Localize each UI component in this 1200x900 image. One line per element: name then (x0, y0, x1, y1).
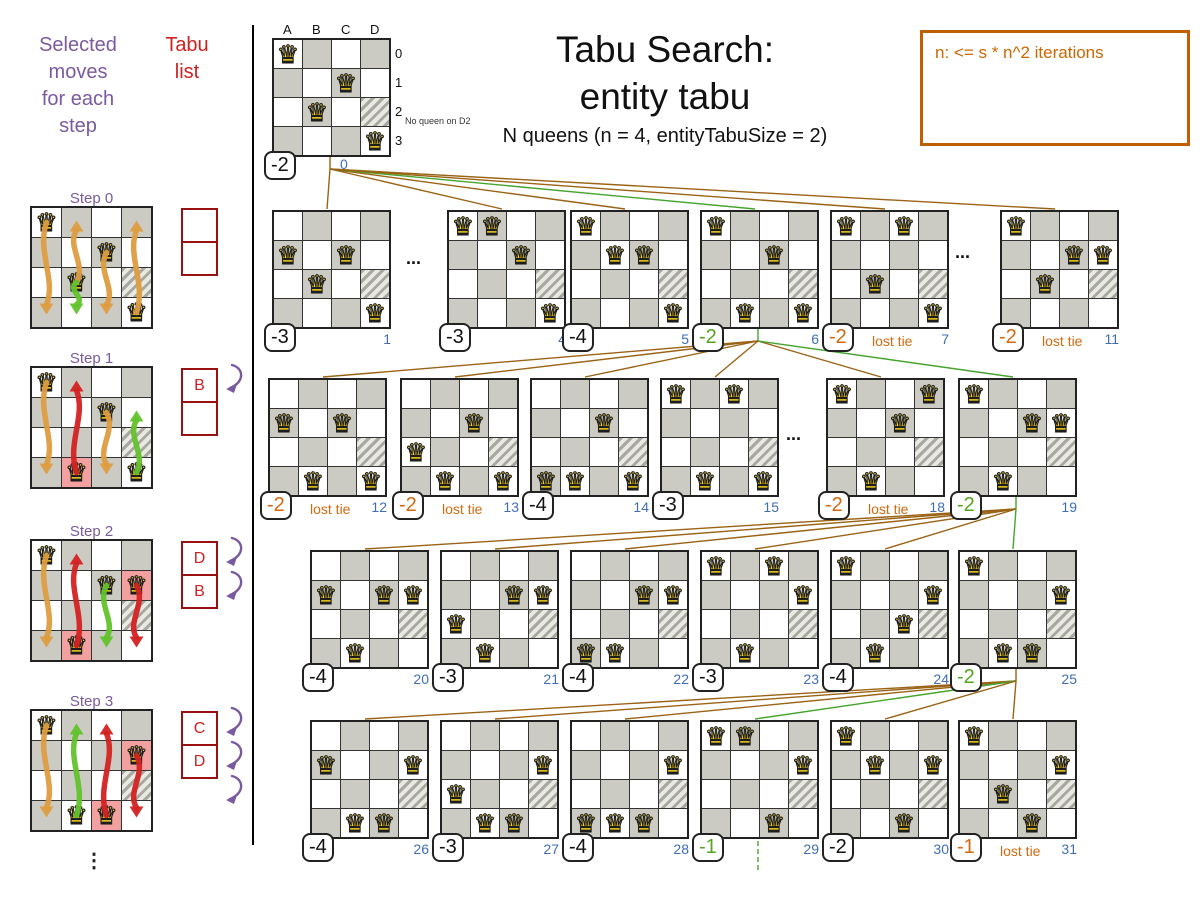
board-cell-B3: ♛ (471, 809, 499, 837)
board-cell-B3 (303, 299, 331, 327)
board-cell-B2 (731, 780, 759, 808)
board-cell-A0: ♛ (832, 722, 860, 750)
board-cell-C3 (720, 467, 748, 495)
board-cell-B0 (601, 212, 629, 240)
board-cell-A1 (572, 751, 600, 779)
board-cell-A1 (449, 241, 477, 269)
board-cell-D3: ♛ (361, 299, 389, 327)
board-14: ♛♛♛♛ (530, 378, 649, 497)
board-cell-C2 (332, 270, 360, 298)
board-cell-A2 (312, 780, 340, 808)
board-cell-A2 (832, 610, 860, 638)
board-cell-A0: ♛ (832, 212, 860, 240)
board-cell-A1: ♛ (312, 581, 340, 609)
queen-icon: ♛ (723, 382, 745, 407)
board-cell-A1 (828, 409, 856, 437)
board-cell-A1: ♛ (270, 409, 298, 437)
board-cell-C1: ♛ (590, 409, 618, 437)
board-cell-B0 (341, 722, 369, 750)
board-cell-C1: ♛ (460, 409, 488, 437)
queen-icon: ♛ (315, 583, 337, 608)
board-cell-A1 (1002, 241, 1030, 269)
board-cell-C3: ♛ (1018, 639, 1046, 667)
board-index-13: 13 (495, 499, 519, 515)
board-cell-C1: ♛ (370, 581, 398, 609)
board-cell-C3 (890, 639, 918, 667)
board-cell-D0 (361, 212, 389, 240)
board-cell-A1 (274, 69, 302, 97)
board-cell-B2 (601, 270, 629, 298)
score-badge-0: -2 (264, 151, 296, 180)
queen-icon: ♛ (705, 214, 727, 239)
board-cell-C1: ♛ (332, 241, 360, 269)
board-cell-A0: ♛ (832, 552, 860, 580)
queen-icon: ♛ (474, 641, 496, 666)
board-cell-D1: ♛ (919, 751, 947, 779)
board-cell-C3 (370, 639, 398, 667)
board-cell-D3: ♛ (619, 467, 647, 495)
tabu-recency-arrow-icon (218, 705, 248, 737)
score-badge-13: -2 (392, 491, 424, 520)
tabu-cell-D: D (183, 744, 216, 777)
tabu-box-step-3: CD (181, 711, 218, 779)
board-cell-D0 (789, 552, 817, 580)
board-cell-D0 (1047, 722, 1075, 750)
board-cell-B1 (601, 751, 629, 779)
board-cell-C2 (890, 270, 918, 298)
board-1: ♛♛♛♛ (272, 210, 391, 329)
board-cell-C2 (760, 610, 788, 638)
queen-icon: ♛ (864, 641, 886, 666)
board-cell-C3 (1060, 299, 1088, 327)
queen-icon: ♛ (893, 612, 915, 637)
board-cell-D2 (529, 780, 557, 808)
board-cell-A0: ♛ (662, 380, 690, 408)
board-index-22: 22 (665, 671, 689, 687)
queen-icon: ♛ (373, 811, 395, 836)
board-cell-D2 (789, 270, 817, 298)
board-index-12: 12 (363, 499, 387, 515)
board-12: ♛♛♛♛ (268, 378, 387, 497)
board-cell-D0 (659, 722, 687, 750)
queen-icon: ♛ (922, 301, 944, 326)
board-cell-C0: ♛ (760, 552, 788, 580)
board-cell-B3 (478, 299, 506, 327)
board-cell-A2 (960, 610, 988, 638)
top-board-col-label-B: B (312, 22, 321, 37)
board-cell-A2: ♛ (442, 780, 470, 808)
board-cell-D1 (357, 409, 385, 437)
queen-icon: ♛ (1021, 411, 1043, 436)
board-cell-C3: ♛ (1018, 809, 1046, 837)
board-cell-D2 (619, 438, 647, 466)
top-board-row-label-3: 3 (395, 133, 402, 148)
board-index-23: 23 (795, 671, 819, 687)
top-board-row-label-1: 1 (395, 75, 402, 90)
tabu-recency-arrow-icon (218, 739, 248, 771)
board-cell-D2 (659, 780, 687, 808)
board-cell-D3 (919, 809, 947, 837)
board-cell-D3: ♛ (659, 299, 687, 327)
board-cell-B2 (989, 438, 1017, 466)
board-cell-C3: ♛ (370, 809, 398, 837)
queen-icon: ♛ (344, 641, 366, 666)
step-3-move-arrows (30, 709, 153, 832)
board-cell-B0 (299, 380, 327, 408)
board-cell-D2 (659, 610, 687, 638)
board-cell-C1 (760, 751, 788, 779)
queen-icon: ♛ (633, 583, 655, 608)
board-cell-D2 (399, 610, 427, 638)
board-cell-B0 (731, 552, 759, 580)
row2-ellipsis: ... (786, 424, 801, 445)
board-index-0: 0 (340, 156, 348, 172)
board-cell-B3 (861, 809, 889, 837)
board-cell-C0 (1060, 212, 1088, 240)
score-badge-6: -2 (692, 323, 724, 352)
queen-icon: ♛ (604, 641, 626, 666)
queen-icon: ♛ (763, 811, 785, 836)
board-cell-C0 (890, 722, 918, 750)
score-badge-25: -2 (950, 663, 982, 692)
board-cell-C0 (332, 212, 360, 240)
board-cell-D3: ♛ (357, 467, 385, 495)
board-cell-D0 (399, 722, 427, 750)
board-cell-A1: ♛ (312, 751, 340, 779)
queen-icon: ♛ (622, 469, 644, 494)
board-cell-C1: ♛ (328, 409, 356, 437)
no-queen-annotation: No queen on D2 (405, 116, 471, 126)
tabu-cell-D: D (183, 543, 216, 574)
board-cell-B2 (857, 438, 885, 466)
board-cell-A2 (832, 270, 860, 298)
board-13: ♛♛♛♛ (400, 378, 519, 497)
top-board-col-label-D: D (370, 22, 379, 37)
board-cell-A0 (312, 722, 340, 750)
board-cell-C1 (890, 751, 918, 779)
board-cell-B1 (861, 241, 889, 269)
board-cell-B1 (861, 581, 889, 609)
queen-icon: ♛ (665, 382, 687, 407)
queen-icon: ♛ (273, 411, 295, 436)
board-cell-C3 (328, 467, 356, 495)
queen-icon: ♛ (963, 554, 985, 579)
board-cell-D0 (399, 552, 427, 580)
board-cell-B1 (561, 409, 589, 437)
lost-tie-label-31: lost tie (1000, 843, 1040, 859)
queen-icon: ♛ (604, 243, 626, 268)
board-cell-B1 (731, 581, 759, 609)
board-index-30: 30 (925, 841, 949, 857)
queen-icon: ♛ (922, 753, 944, 778)
board-26: ♛♛♛♛ (310, 720, 429, 839)
board-cell-B3: ♛ (731, 639, 759, 667)
score-badge-11: -2 (992, 323, 1024, 352)
board-cell-C2 (507, 270, 535, 298)
queen-icon: ♛ (1005, 214, 1027, 239)
board-cell-D1 (619, 409, 647, 437)
board-index-25: 25 (1053, 671, 1077, 687)
board-cell-A1 (442, 581, 470, 609)
score-badge-20: -4 (302, 663, 334, 692)
board-cell-D2 (361, 270, 389, 298)
board-cell-A2 (270, 438, 298, 466)
queen-icon: ♛ (302, 469, 324, 494)
board-cell-C2 (590, 438, 618, 466)
board-cell-C3 (590, 467, 618, 495)
board-cell-B2 (561, 438, 589, 466)
queen-icon: ♛ (662, 753, 684, 778)
tabu-recency-arrow-icon (218, 773, 248, 805)
score-badge-14: -4 (522, 491, 554, 520)
score-badge-31: -1 (950, 833, 982, 862)
score-badge-4: -3 (439, 323, 471, 352)
queen-icon: ♛ (792, 301, 814, 326)
queen-icon: ♛ (564, 469, 586, 494)
board-cell-D0 (749, 380, 777, 408)
board-cell-B0 (989, 552, 1017, 580)
board-cell-C0: ♛ (720, 380, 748, 408)
board-index-29: 29 (795, 841, 819, 857)
board-cell-D0 (536, 212, 564, 240)
tabu-cell-B: B (183, 370, 216, 401)
queen-icon: ♛ (889, 411, 911, 436)
board-cell-A1 (572, 241, 600, 269)
board-cell-D1: ♛ (1047, 581, 1075, 609)
board-cell-C2 (370, 610, 398, 638)
board-cell-C3 (630, 639, 658, 667)
board-cell-D1 (915, 409, 943, 437)
tabu-recency-arrow-icon (218, 569, 248, 601)
board-cell-D0 (1047, 552, 1075, 580)
queen-icon: ♛ (434, 469, 456, 494)
board-cell-D1: ♛ (1089, 241, 1117, 269)
board-cell-A2 (662, 438, 690, 466)
board-cell-D3: ♛ (361, 127, 389, 155)
board-cell-C3 (630, 299, 658, 327)
board-cell-B0 (731, 212, 759, 240)
board-cell-D1: ♛ (1047, 409, 1075, 437)
score-badge-1: -3 (264, 323, 296, 352)
board-cell-A0 (270, 380, 298, 408)
board-cell-D0 (1047, 380, 1075, 408)
board-cell-C2 (760, 270, 788, 298)
queen-icon: ♛ (662, 301, 684, 326)
board-cell-C0 (370, 552, 398, 580)
queen-icon: ♛ (364, 301, 386, 326)
board-cell-B3 (1031, 299, 1059, 327)
board-cell-C1: ♛ (630, 581, 658, 609)
board-cell-D0 (529, 722, 557, 750)
board-cell-C1 (370, 751, 398, 779)
top-board-row-label-2: 2 (395, 104, 402, 119)
board-cell-B3: ♛ (341, 809, 369, 837)
board-cell-B3: ♛ (989, 639, 1017, 667)
score-badge-12: -2 (260, 491, 292, 520)
board-cell-A0: ♛ (960, 552, 988, 580)
board-cell-A1 (402, 409, 430, 437)
board-cell-B1 (431, 409, 459, 437)
lost-tie-label-13: lost tie (442, 501, 482, 517)
queen-icon: ♛ (364, 129, 386, 154)
tabu-cell-empty (183, 241, 216, 274)
board-cell-A0 (442, 722, 470, 750)
board-cell-C3 (890, 299, 918, 327)
board-cell-C2 (370, 780, 398, 808)
board-cell-D1: ♛ (399, 581, 427, 609)
board-cell-B0 (691, 380, 719, 408)
step-label-2: Step 2 (30, 523, 153, 540)
queen-icon: ♛ (1050, 411, 1072, 436)
board-0: ♛♛♛♛ (272, 38, 391, 157)
board-cell-D2 (529, 610, 557, 638)
board-cell-D2 (357, 438, 385, 466)
board-cell-A1 (960, 409, 988, 437)
board-cell-C2 (460, 438, 488, 466)
queen-icon: ♛ (1034, 272, 1056, 297)
board-cell-B3: ♛ (731, 299, 759, 327)
board-cell-A2 (960, 780, 988, 808)
board-cell-C0 (1018, 722, 1046, 750)
board-25: ♛♛♛♛ (958, 550, 1077, 669)
board-cell-C1: ♛ (886, 409, 914, 437)
board-cell-B1 (299, 409, 327, 437)
board-21: ♛♛♛♛ (440, 550, 559, 669)
queen-icon: ♛ (763, 243, 785, 268)
board-cell-C3: ♛ (500, 809, 528, 837)
board-cell-B1 (303, 241, 331, 269)
board-cell-C0 (500, 552, 528, 580)
tabu-recency-arrow-icon (218, 535, 248, 567)
board-cell-C3: ♛ (760, 809, 788, 837)
queen-icon: ♛ (705, 724, 727, 749)
board-4: ♛♛♛♛ (447, 210, 566, 329)
queen-icon: ♛ (481, 214, 503, 239)
board-cell-C3 (760, 639, 788, 667)
board-index-19: 19 (1053, 499, 1077, 515)
queen-icon: ♛ (893, 811, 915, 836)
board-cell-C3: ♛ (630, 809, 658, 837)
board-cell-A2 (1002, 270, 1030, 298)
queen-icon: ♛ (1021, 641, 1043, 666)
board-cell-B0: ♛ (731, 722, 759, 750)
board-cell-B3 (989, 809, 1017, 837)
board-cell-C2 (890, 780, 918, 808)
board-cell-C2 (1060, 270, 1088, 298)
board-cell-D1 (536, 241, 564, 269)
queen-icon: ♛ (445, 782, 467, 807)
board-cell-A2 (828, 438, 856, 466)
queen-icon: ♛ (405, 440, 427, 465)
board-cell-C1 (890, 241, 918, 269)
board-index-24: 24 (925, 671, 949, 687)
board-cell-D2 (1047, 610, 1075, 638)
board-cell-D0 (489, 380, 517, 408)
queen-icon: ♛ (575, 641, 597, 666)
top-board-col-label-C: C (341, 22, 350, 37)
board-23: ♛♛♛♛ (700, 550, 819, 669)
step-label-0: Step 0 (30, 190, 153, 207)
board-cell-C1: ♛ (1018, 409, 1046, 437)
board-cell-C2 (1018, 438, 1046, 466)
board-cell-A2 (312, 610, 340, 638)
board-cell-D0 (659, 212, 687, 240)
board-cell-B0 (1031, 212, 1059, 240)
board-cell-A2: ♛ (402, 438, 430, 466)
board-cell-B0 (431, 380, 459, 408)
board-index-5: 5 (665, 331, 689, 347)
queen-icon: ♛ (763, 554, 785, 579)
board-cell-B3: ♛ (989, 467, 1017, 495)
board-cell-D3: ♛ (789, 299, 817, 327)
board-cell-B0 (861, 552, 889, 580)
score-badge-27: -3 (432, 833, 464, 862)
board-cell-B2 (341, 610, 369, 638)
board-cell-B2 (601, 780, 629, 808)
queen-icon: ♛ (277, 42, 299, 67)
board-cell-D0: ♛ (915, 380, 943, 408)
tabu-cell-empty (183, 210, 216, 241)
board-cell-C1 (720, 409, 748, 437)
queen-icon: ♛ (734, 301, 756, 326)
board-cell-D0 (919, 722, 947, 750)
board-cell-A2 (572, 610, 600, 638)
board-cell-B1 (857, 409, 885, 437)
board-cell-C2: ♛ (890, 610, 918, 638)
board-cell-C3 (332, 127, 360, 155)
board-cell-A1 (702, 751, 730, 779)
queen-icon: ♛ (705, 554, 727, 579)
queen-icon: ♛ (992, 641, 1014, 666)
board-cell-D2 (789, 780, 817, 808)
board-cell-A0 (532, 380, 560, 408)
board-cell-D1: ♛ (919, 581, 947, 609)
board-cell-D1 (361, 69, 389, 97)
board-cell-C2 (886, 438, 914, 466)
board-cell-B3: ♛ (341, 639, 369, 667)
board-cell-A1 (572, 581, 600, 609)
board-cell-A2 (702, 610, 730, 638)
board-cell-C3 (507, 299, 535, 327)
board-cell-D3 (399, 809, 427, 837)
board-cell-B3: ♛ (561, 467, 589, 495)
board-cell-D2 (919, 780, 947, 808)
board-index-1: 1 (367, 331, 391, 347)
score-badge-22: -4 (562, 663, 594, 692)
queen-icon: ♛ (633, 243, 655, 268)
queen-icon: ♛ (532, 583, 554, 608)
row1-ellipsis-b: ... (955, 242, 970, 263)
score-badge-28: -4 (562, 833, 594, 862)
queen-icon: ♛ (331, 411, 353, 436)
board-27: ♛♛♛♛ (440, 720, 559, 839)
board-cell-B0 (341, 552, 369, 580)
lost-tie-label-18: lost tie (868, 501, 908, 517)
board-20: ♛♛♛♛ (310, 550, 429, 669)
board-cell-D1: ♛ (659, 581, 687, 609)
board-cell-C0 (328, 380, 356, 408)
board-cell-C1: ♛ (332, 69, 360, 97)
board-cell-C0 (760, 212, 788, 240)
queen-icon: ♛ (452, 214, 474, 239)
queen-icon: ♛ (604, 811, 626, 836)
board-cell-B2: ♛ (989, 780, 1017, 808)
top-board-col-label-A: A (283, 22, 292, 37)
queen-icon: ♛ (662, 583, 684, 608)
board-cell-D2 (536, 270, 564, 298)
board-cell-B1 (601, 581, 629, 609)
board-cell-D1: ♛ (1047, 751, 1075, 779)
